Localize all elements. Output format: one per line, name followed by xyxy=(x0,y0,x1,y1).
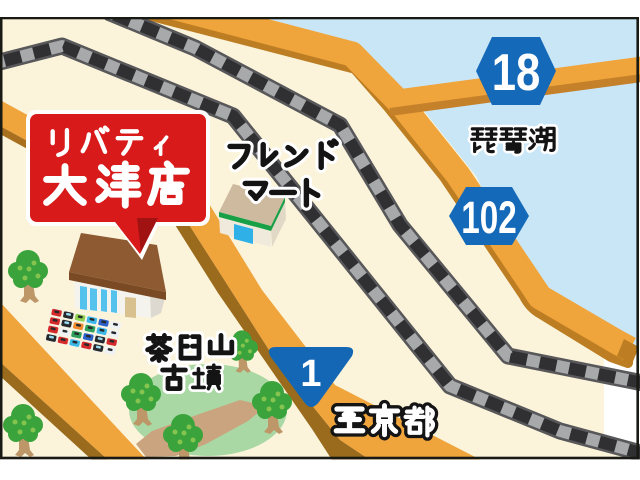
svg-text:102: 102 xyxy=(461,193,517,243)
svg-text:18: 18 xyxy=(492,45,541,102)
svg-text:1: 1 xyxy=(300,353,321,395)
